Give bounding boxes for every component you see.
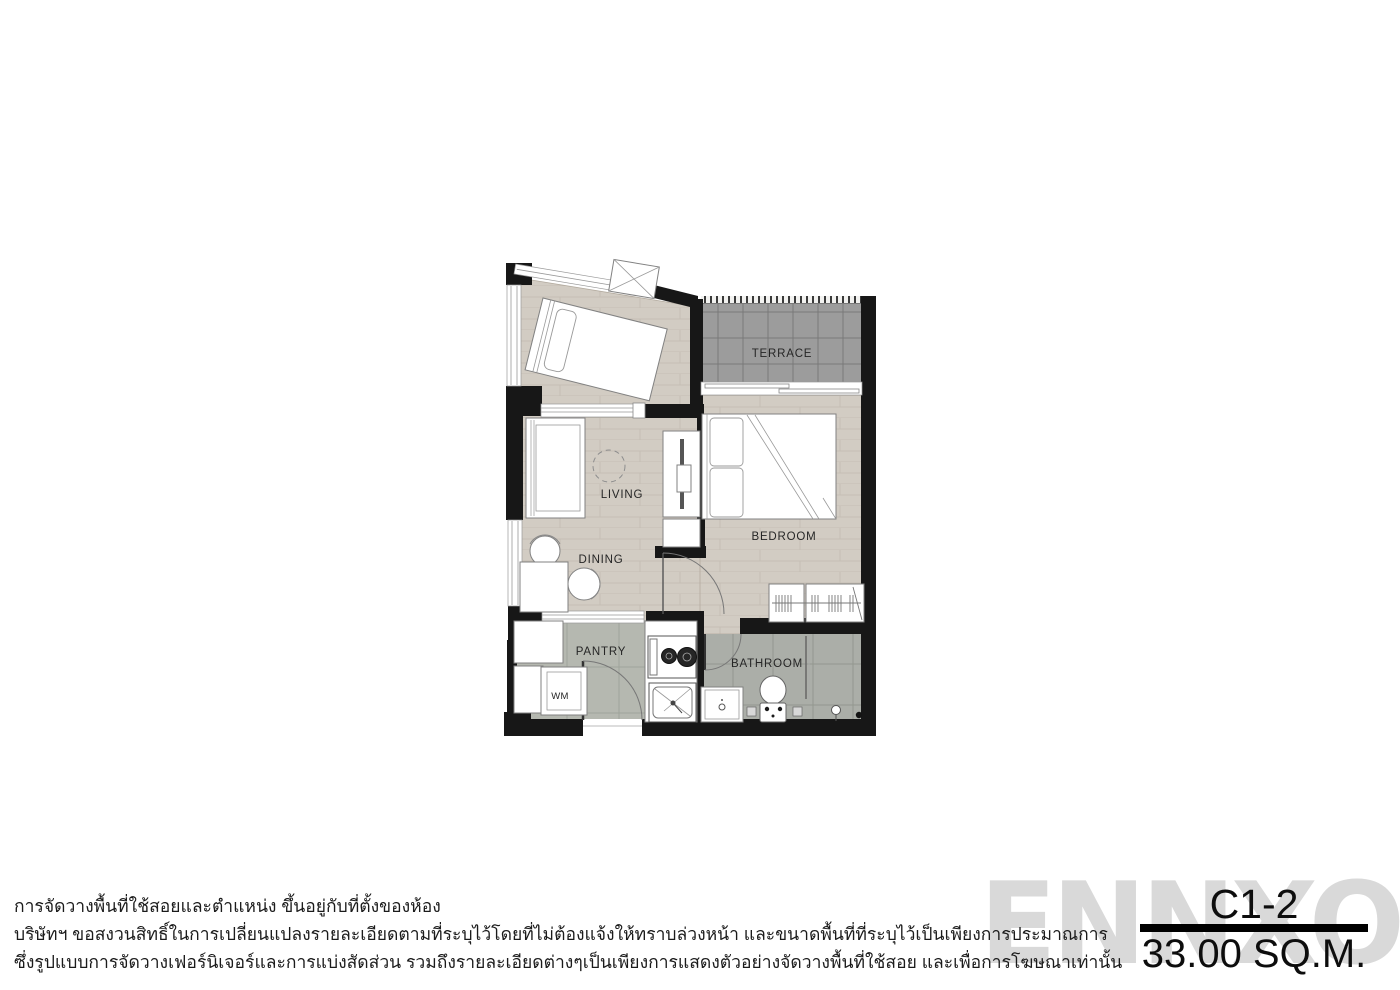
tv-console-icon xyxy=(663,431,700,517)
sliding-partition xyxy=(541,403,645,418)
wall xyxy=(861,296,876,736)
wall xyxy=(506,719,583,736)
sofa-icon xyxy=(526,418,585,518)
disclaimer-line: การจัดวางพื้นที่ใช้สอยและตำแหน่ง ขึ้นอยู… xyxy=(14,892,1122,920)
counter-icon xyxy=(514,666,543,713)
dining-chair-icon xyxy=(568,568,600,600)
dining-chair-icon xyxy=(530,535,560,566)
floor-drain-icon xyxy=(747,707,756,716)
wall xyxy=(506,386,542,416)
counter-icon xyxy=(514,621,563,663)
window xyxy=(507,285,521,386)
wardrobe-icon xyxy=(769,584,864,622)
disclaimer-line: บริษัทฯ ขอสงวนสิทธิ์ในการเปลี่ยนแปลงรายล… xyxy=(14,920,1122,948)
unit-area: 33.00 SQ.M. xyxy=(1140,933,1368,975)
disclaimer-text: การจัดวางพื้นที่ใช้สอยและตำแหน่ง ขึ้นอยู… xyxy=(14,892,1122,976)
terrace-sliding-door xyxy=(701,382,862,395)
floor-drain-icon xyxy=(793,707,802,716)
living-label: LIVING xyxy=(601,489,644,501)
ac-unit-icon xyxy=(609,259,660,298)
stove-icon xyxy=(648,636,697,678)
pantry-label: PANTRY xyxy=(576,646,626,658)
unit-code: C1-2 xyxy=(1140,884,1368,924)
disclaimer-line: ซึ่งรูปแบบการจัดวางเฟอร์นิเจอร์และการแบ่… xyxy=(14,948,1122,976)
wall xyxy=(690,299,703,418)
dining-table-icon xyxy=(520,562,568,612)
vanity-sink-icon xyxy=(701,687,743,722)
bedroom-label: BEDROOM xyxy=(751,531,816,543)
floor-plan: TERRACE LIVING DINING BEDROOM PANTRY BAT… xyxy=(0,0,1400,990)
wall xyxy=(644,404,704,418)
bathroom-label: BATHROOM xyxy=(731,658,803,670)
terrace-railing xyxy=(701,296,863,303)
wall xyxy=(506,414,523,520)
unit-info: C1-2 33.00 SQ.M. xyxy=(1140,884,1368,975)
bed-icon xyxy=(702,414,836,519)
dining-label: DINING xyxy=(578,554,623,566)
toilet-icon xyxy=(760,676,786,722)
wm-label: WM xyxy=(551,691,568,702)
entry-threshold xyxy=(583,719,642,734)
terrace-label: TERRACE xyxy=(752,348,813,360)
cabinet-icon xyxy=(663,519,700,547)
sink-icon xyxy=(649,683,696,722)
terrace-floor xyxy=(700,296,864,390)
floorplan-page: { "unit": { "code": "C1-2", "area": "33.… xyxy=(0,0,1400,990)
